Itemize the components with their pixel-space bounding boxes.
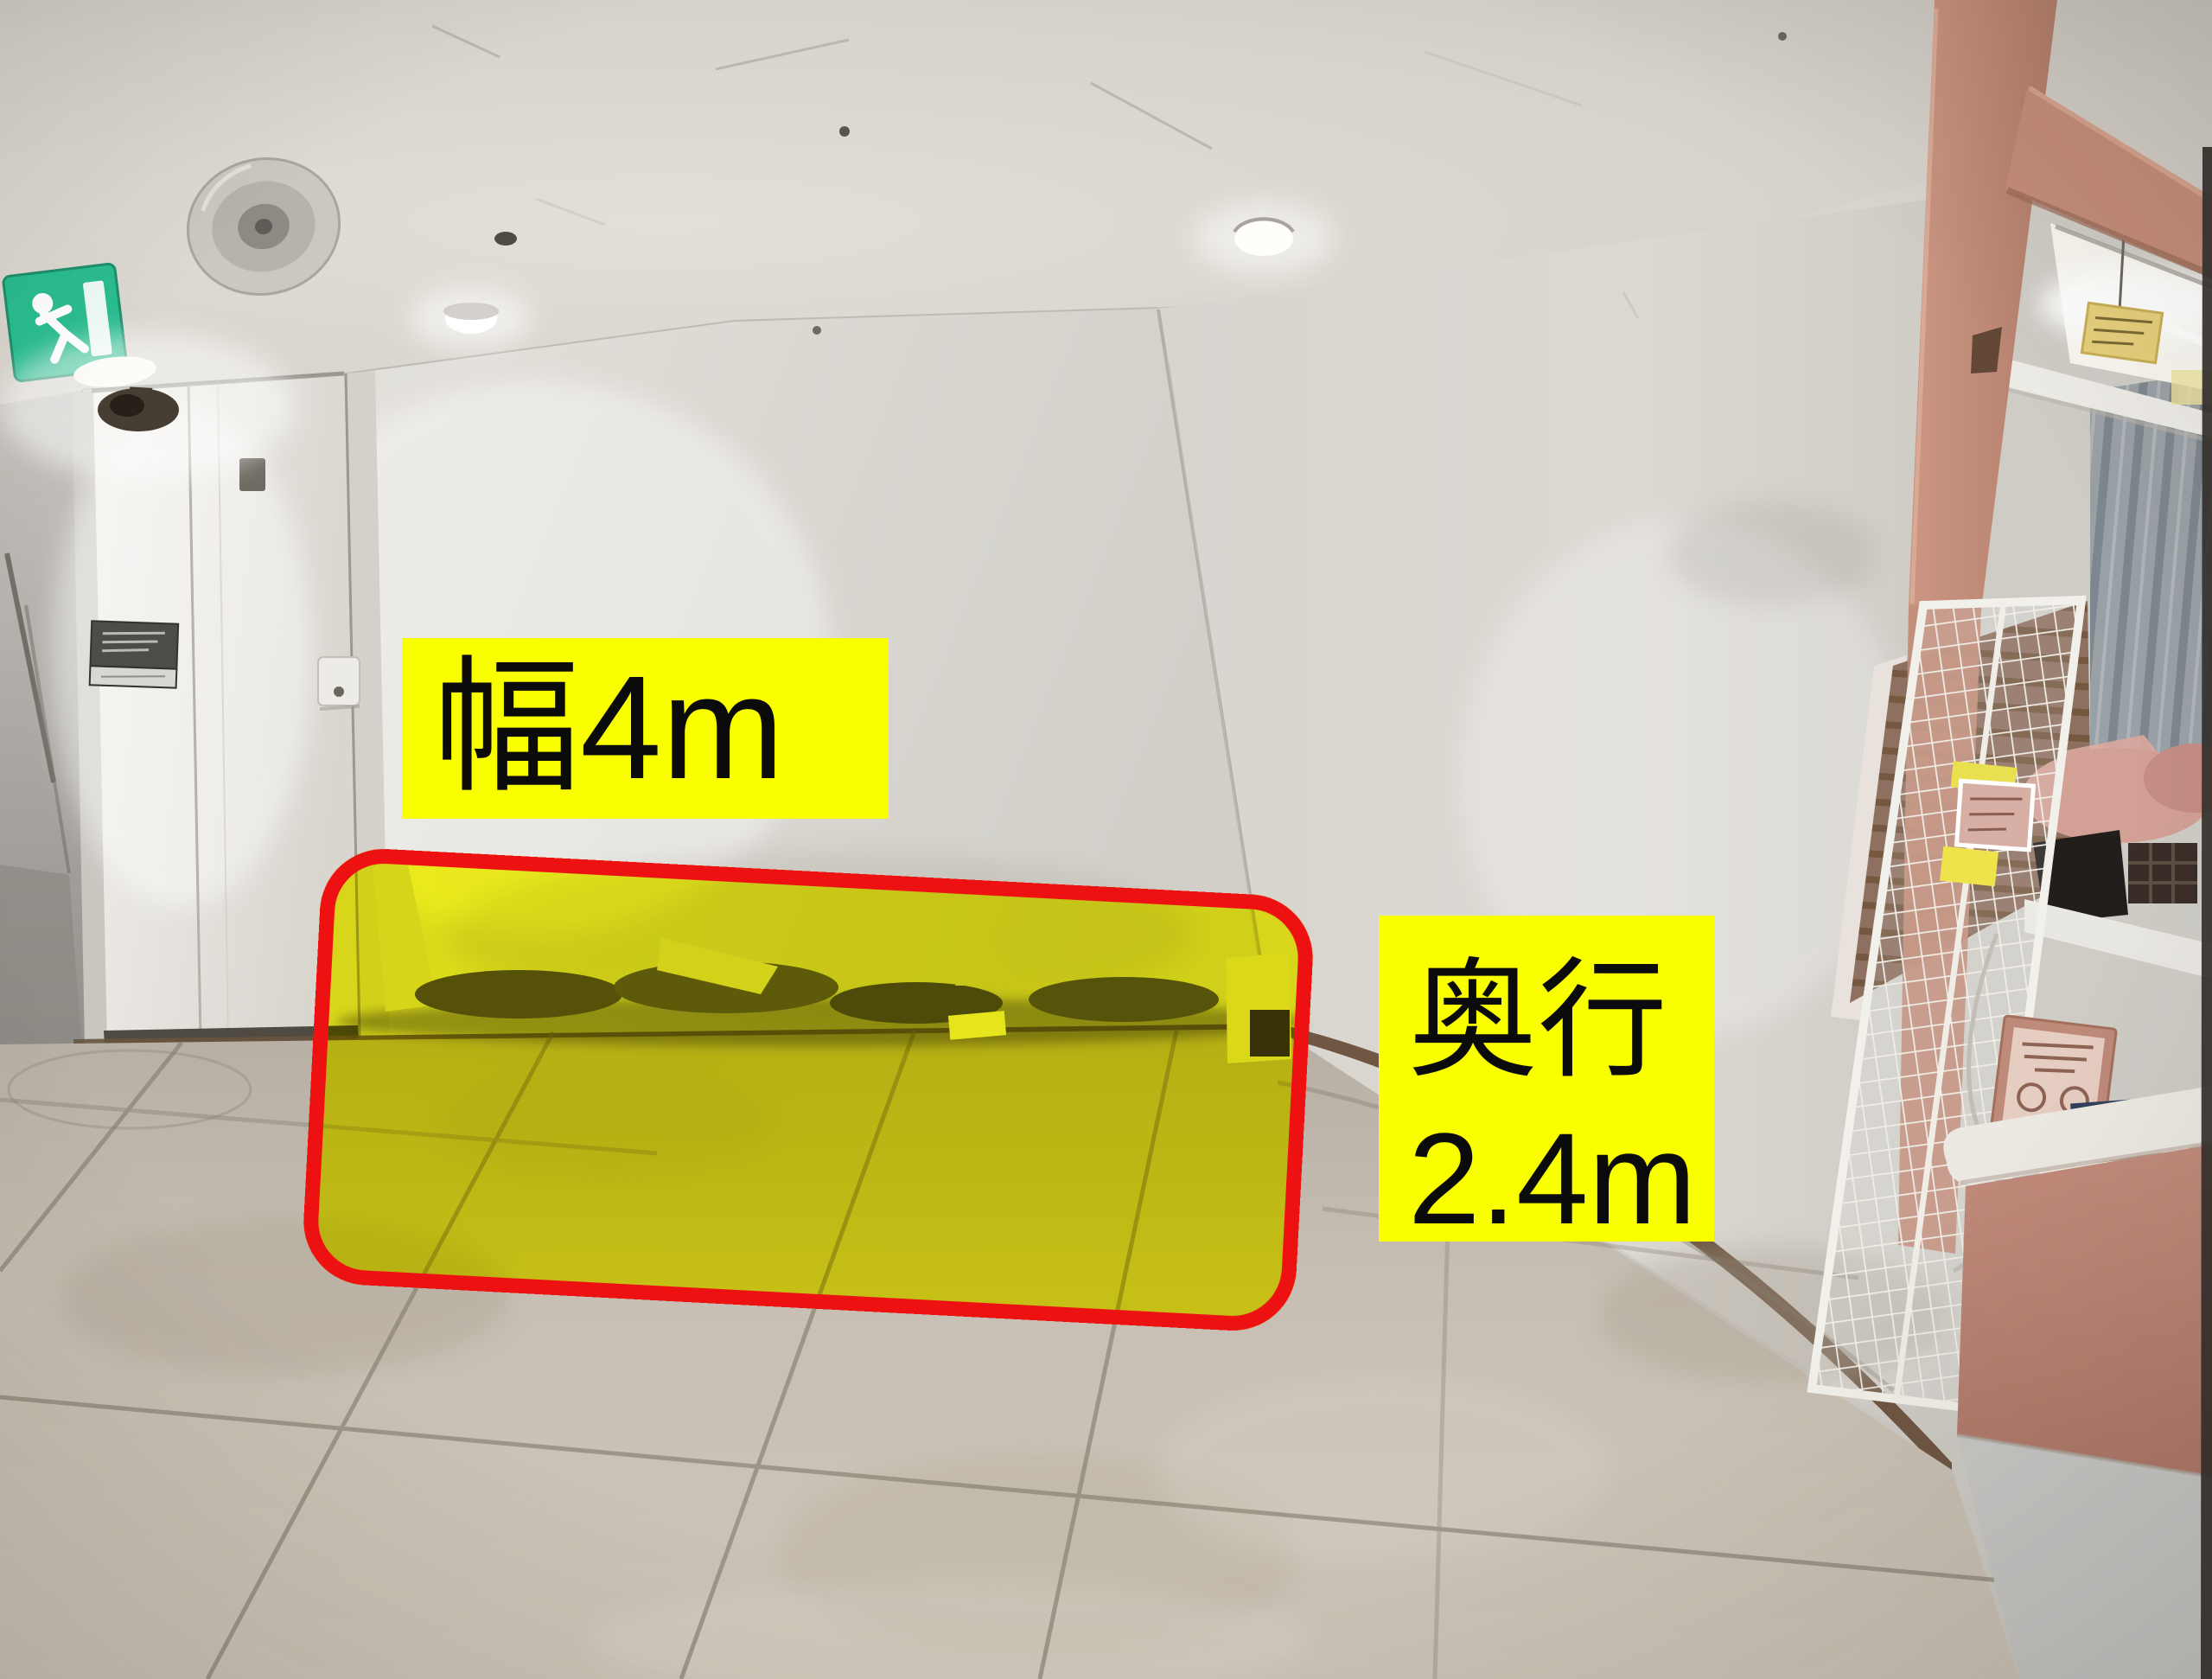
depth-dimension-label: 奥行 2.4m [1379, 916, 1714, 1242]
width-dimension-label: 幅4m [402, 638, 889, 819]
depth-label-line2: 2.4m [1408, 1100, 1714, 1258]
room-photo [0, 0, 2212, 1679]
depth-label-line1: 奥行 [1408, 942, 1714, 1100]
vignette [0, 0, 2212, 1679]
annotated-photo: 幅4m 奥行 2.4m [0, 0, 2212, 1679]
highlighted-area-outline [301, 846, 1316, 1333]
